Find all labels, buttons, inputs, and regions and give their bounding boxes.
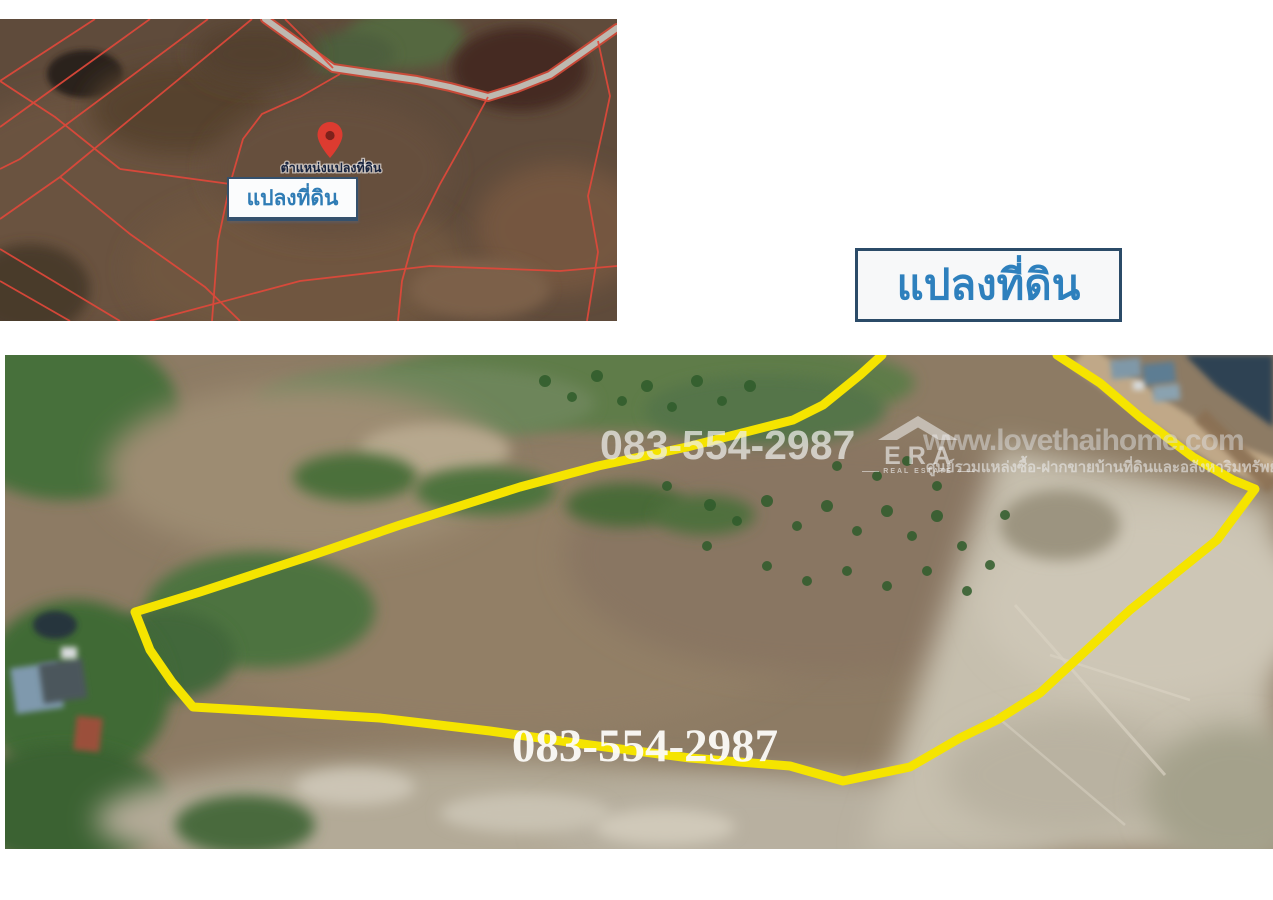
aerial-photo: 083-554-2987 083-554-2987 www.lovethaiho… bbox=[5, 355, 1273, 849]
website-tagline-watermark: ศูนย์รวมแหล่งซื้อ-ฝากขายบ้านที่ดินและอสั… bbox=[926, 455, 1256, 479]
plot-title-box: แปลงที่ดิน bbox=[855, 248, 1122, 322]
phone-number-overlay-top: 083-554-2987 bbox=[600, 422, 840, 469]
era-subbrand-text: REAL ESTATE bbox=[883, 468, 952, 475]
era-rule-left bbox=[862, 471, 879, 472]
era-roof-icon bbox=[868, 413, 968, 441]
era-logo: ERA REAL ESTATE bbox=[862, 413, 974, 475]
map-pin-caption: ตำแหน่งแปลงที่ดิน bbox=[281, 159, 382, 175]
era-rule-right bbox=[957, 471, 974, 472]
listing-composite-image: ตำแหน่งแปลงที่ดิน แปลงที่ดิน แปลงที่ดิน bbox=[0, 0, 1273, 900]
inset-cadastral-map: ตำแหน่งแปลงที่ดิน แปลงที่ดิน bbox=[0, 19, 617, 321]
inset-map-art: ตำแหน่งแปลงที่ดิน bbox=[0, 19, 617, 321]
map-plot-label-box: แปลงที่ดิน bbox=[227, 177, 358, 221]
phone-number-overlay-bottom: 083-554-2987 bbox=[510, 719, 780, 773]
era-brand-text: ERA bbox=[868, 446, 974, 466]
map-plot-label: แปลงที่ดิน bbox=[247, 182, 339, 215]
plot-title-label: แปลงที่ดิน bbox=[897, 252, 1081, 318]
